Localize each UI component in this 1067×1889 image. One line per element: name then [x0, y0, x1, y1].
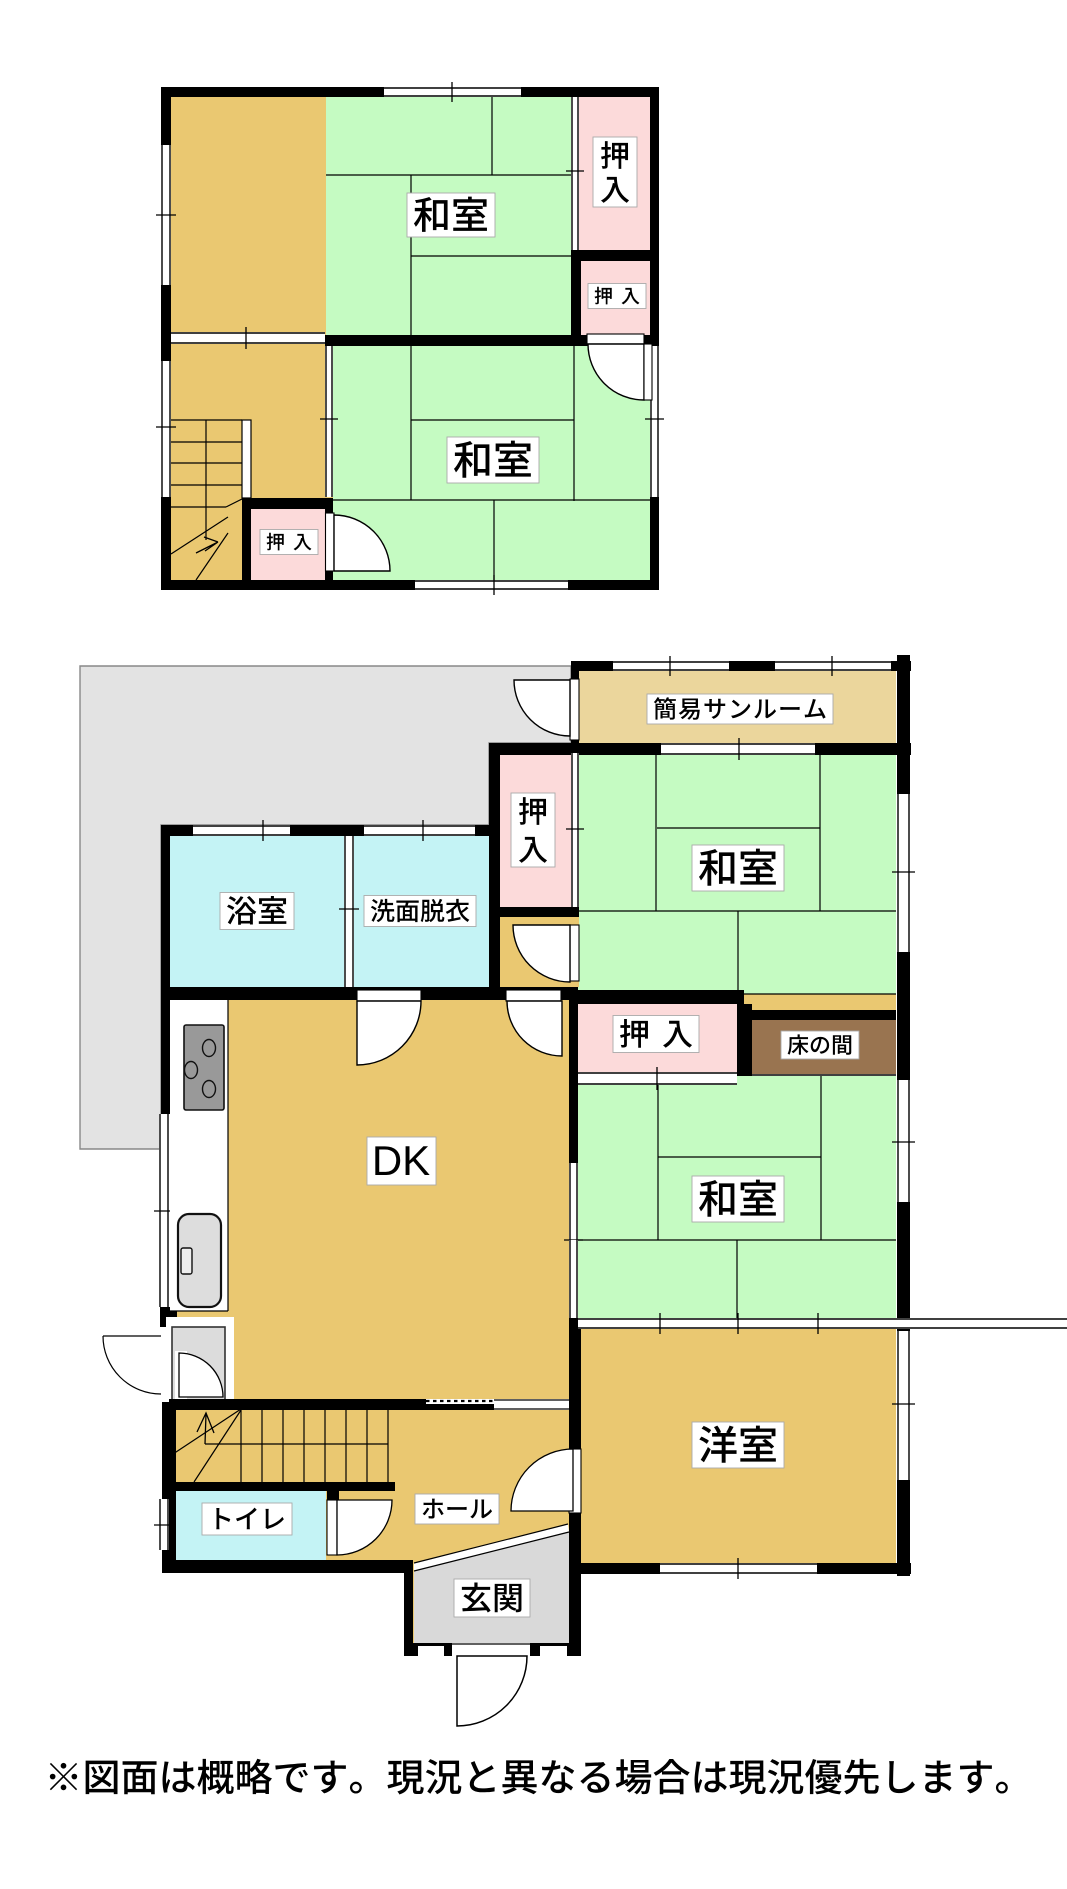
- svg-text:DK: DK: [372, 1137, 430, 1184]
